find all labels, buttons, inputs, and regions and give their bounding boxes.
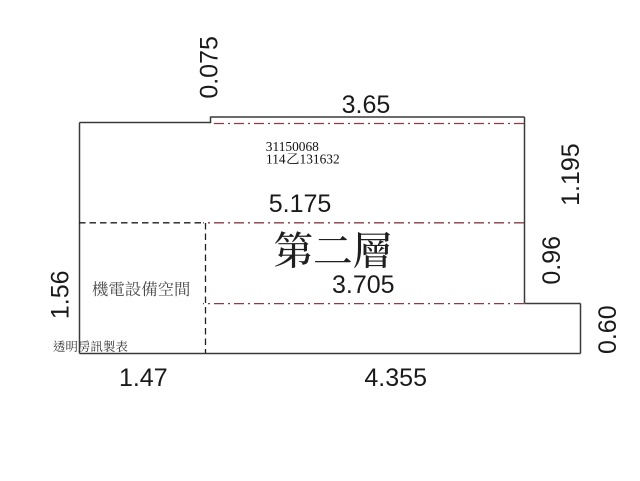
svg-text:1.47: 1.47 xyxy=(119,364,168,392)
svg-text:131632: 131632 xyxy=(300,152,340,167)
svg-text:0.075: 0.075 xyxy=(196,36,224,99)
svg-text:3.65: 3.65 xyxy=(342,91,391,119)
svg-text:4.355: 4.355 xyxy=(364,364,427,392)
svg-text:0.96: 0.96 xyxy=(538,236,566,285)
svg-text:0.60: 0.60 xyxy=(594,305,622,354)
svg-text:1.56: 1.56 xyxy=(47,270,75,319)
svg-text:3.705: 3.705 xyxy=(332,271,395,299)
svg-text:5.175: 5.175 xyxy=(269,190,332,218)
svg-text:114: 114 xyxy=(266,152,286,167)
svg-text:1.195: 1.195 xyxy=(557,143,585,206)
